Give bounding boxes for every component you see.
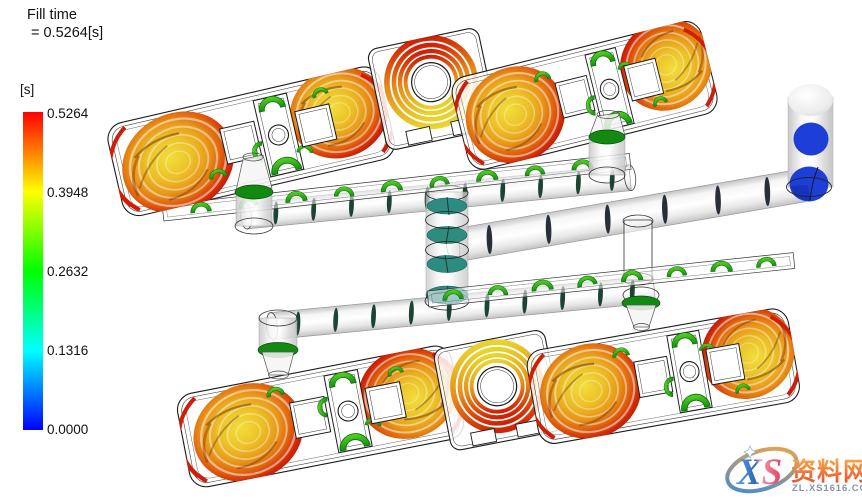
- watermark: XS 资料网 ZL.XS1616.COM: [722, 441, 862, 498]
- watermark-site-url: ZL.XS1616.COM: [792, 483, 862, 494]
- legend-tick-50: 0.2632: [47, 264, 88, 279]
- result-canvas[interactable]: Fill time = 0.5264[s] [s] 0.5264 0.3948 …: [0, 0, 862, 498]
- melt-entry-disc-1: [794, 123, 829, 156]
- window-hole: [706, 344, 745, 385]
- legend-tick-75: 0.3948: [47, 185, 88, 200]
- watermark-site-name: 资料网: [791, 458, 862, 486]
- colorbar: [23, 112, 43, 430]
- cavity-bar-top-right: [441, 0, 736, 184]
- colorbar-legend: [s] 0.5264 0.3948 0.2632 0.1316 0.0000: [20, 82, 89, 437]
- result-title: Fill time = 0.5264[s]: [27, 7, 103, 41]
- gate-disc-green: [235, 185, 273, 199]
- legend-tick-min: 0.0000: [47, 422, 88, 437]
- window-hole: [289, 396, 330, 438]
- cavity-bar-bottom-left: [169, 332, 476, 498]
- model-viewport[interactable]: [98, 0, 833, 498]
- gate-drop-bottom-left: [258, 310, 298, 379]
- cae-result-window: Fill time = 0.5264[s] [s] 0.5264 0.3948 …: [0, 0, 862, 498]
- gate-disc-green: [589, 130, 625, 144]
- sprue-dome: [788, 84, 833, 116]
- cavity-bar-bottom-right: [518, 288, 816, 457]
- legend-tick-max: 0.5264: [47, 106, 89, 121]
- legend-tick-25: 0.1316: [47, 343, 88, 358]
- legend-unit-label: [s]: [20, 82, 34, 97]
- window-hole: [295, 104, 337, 147]
- title-line1: Fill time: [27, 7, 77, 23]
- sprue-cylinder: [787, 84, 834, 202]
- window-hole: [365, 382, 406, 424]
- watermark-logo-text: XS: [736, 452, 782, 493]
- title-line2: = 0.5264[s]: [31, 25, 103, 41]
